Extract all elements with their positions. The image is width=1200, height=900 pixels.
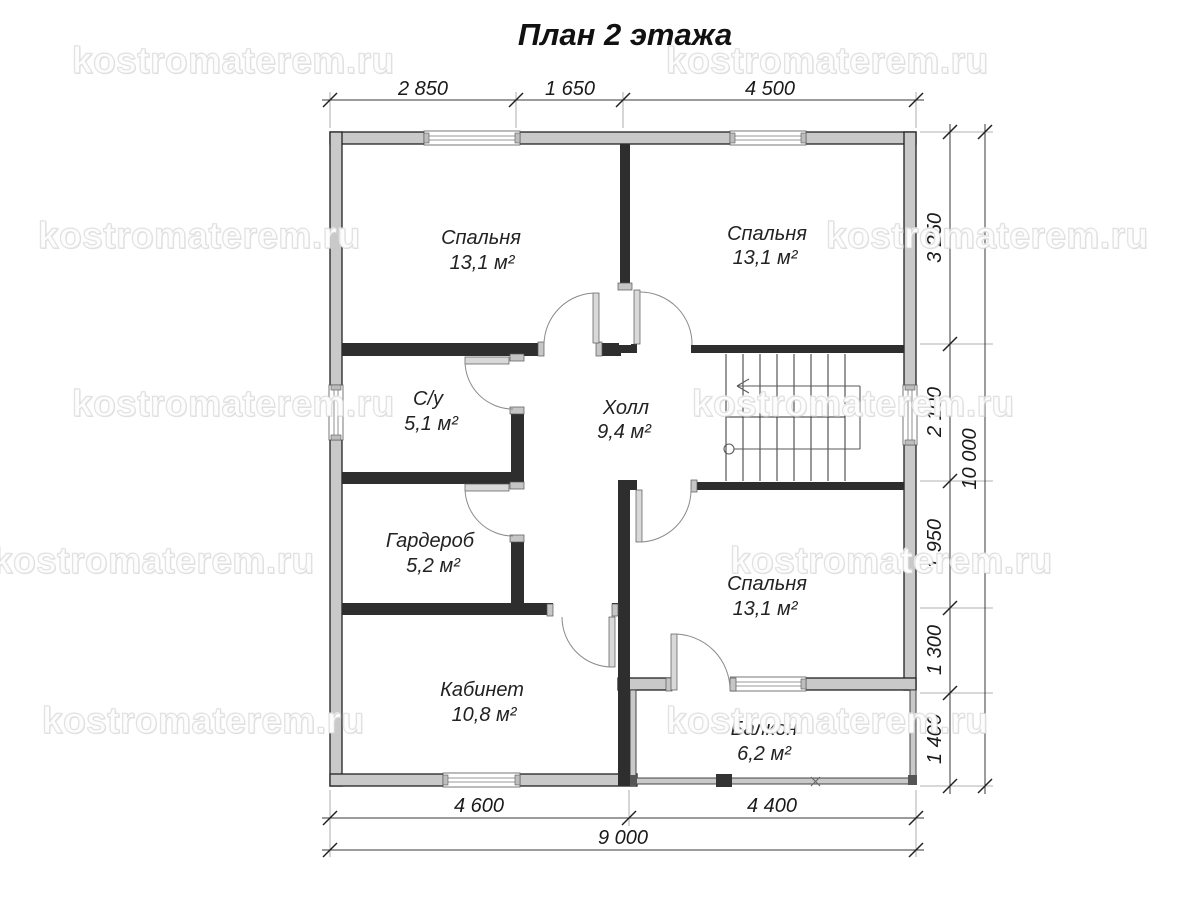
dimension-top: 2 850 1 650 4 500 (322, 78, 924, 128)
dim-right-3: 1 950 (924, 519, 946, 569)
balcony-post (716, 774, 732, 787)
floor-plan-page: План 2 этажа (0, 0, 1200, 900)
wall-stairs-top (691, 345, 904, 353)
dim-top-3: 4 500 (745, 78, 795, 100)
room-area-office: 10,8 м² (452, 704, 518, 726)
room-label-hall: Холл (602, 397, 649, 419)
dimension-right: 3 250 2 100 1 950 1 300 1 400 10 000 (920, 124, 993, 794)
window-stairs (903, 385, 917, 445)
balcony-rail-right (910, 690, 916, 784)
room-label-balcony: Балкон (731, 718, 798, 740)
door-balcony (666, 634, 736, 692)
floor-plan-drawing: План 2 этажа (0, 0, 1200, 900)
dim-top-1: 2 850 (397, 78, 448, 100)
balcony-rail-bottom (630, 778, 916, 784)
wall-office-right (618, 480, 630, 786)
dim-right-total: 10 000 (959, 428, 981, 489)
room-label-office: Кабинет (440, 679, 524, 701)
wall-wc-right-b (511, 408, 524, 488)
room-label-wardrobe: Гардероб (386, 530, 475, 552)
window-office (443, 773, 520, 787)
door-office (547, 601, 618, 667)
dimension-bottom: 4 600 4 400 9 000 (322, 790, 924, 857)
dim-right-5: 1 400 (924, 714, 946, 764)
wall-stairs-bottom (691, 482, 904, 490)
wall-wc-bottom (342, 472, 511, 484)
balcony-rail-left (630, 690, 636, 784)
wall-wardrobe-bottom (342, 603, 553, 615)
room-area-bathroom: 5,1 м² (404, 413, 459, 435)
room-area-bedroom3: 13,1 м² (733, 598, 799, 620)
door-bedroom2 (618, 283, 692, 345)
room-area-bedroom2: 13,1 м² (733, 247, 799, 269)
dim-top-2: 1 650 (545, 78, 595, 100)
room-label-bedroom2: Спальня (727, 223, 807, 245)
dim-right-2: 2 100 (924, 387, 946, 438)
dim-bottom-1: 4 600 (454, 795, 504, 817)
room-area-hall: 9,4 м² (597, 421, 652, 443)
door-bedroom3 (636, 478, 697, 542)
dim-right-1: 3 250 (924, 213, 946, 263)
door-bedroom1 (538, 293, 602, 358)
room-label-bathroom: С/у (413, 388, 444, 410)
door-bathroom (465, 354, 525, 414)
room-area-bedroom1: 13,1 м² (450, 252, 516, 274)
window-bedroom2 (730, 131, 806, 145)
page-title: План 2 этажа (518, 17, 732, 52)
wall-office-right-cap (618, 480, 637, 490)
room-label-bedroom3: Спальня (727, 573, 807, 595)
window-balcony (730, 677, 806, 691)
wall-left (330, 132, 342, 786)
window-bathroom (329, 385, 343, 440)
balcony-post-corner-right (908, 775, 917, 785)
room-label-bedroom1: Спальня (441, 227, 521, 249)
window-bedroom1 (424, 131, 520, 145)
stairs (724, 354, 860, 481)
dim-bottom-total: 9 000 (598, 827, 648, 849)
room-area-balcony: 6,2 м² (737, 743, 792, 765)
room-area-wardrobe: 5,2 м² (406, 555, 461, 577)
dim-bottom-2: 4 400 (747, 795, 797, 817)
dim-right-4: 1 300 (924, 625, 946, 675)
wall-top (330, 132, 916, 144)
